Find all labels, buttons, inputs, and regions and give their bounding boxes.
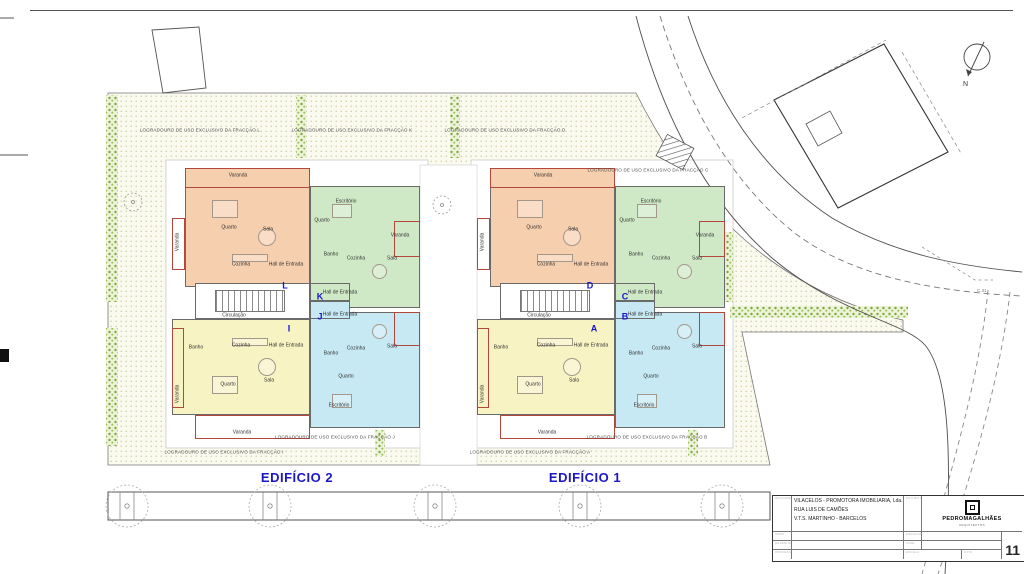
micro-label-client: REQUERENTE bbox=[775, 497, 789, 500]
edificio-label: EDIFÍCIO 2 bbox=[261, 470, 333, 485]
logradouro-label: LOGRADOURO DE USO EXCLUSIVO DA FRACÇÃO I bbox=[164, 450, 283, 455]
micro-label-process: PROCESSO bbox=[775, 551, 789, 554]
logradouro-label: LOGRADOURO DE USO EXCLUSIVO DA FRACÇÃO A bbox=[470, 450, 591, 455]
micro-label-work: OBRA bbox=[775, 533, 789, 536]
logradouro-label: LOGRADOURO DE USO EXCLUSIVO DA FRACÇÃO J bbox=[275, 435, 395, 440]
logradouro-label: LOGRADOURO DE USO EXCLUSIVO DA FRACÇÃO L bbox=[140, 128, 260, 133]
micro-label-drawing: DESENHO bbox=[775, 542, 789, 545]
architect-name: PEDROMAGALHÃES bbox=[942, 516, 1001, 522]
logradouro-label: LOGRADOURO DE USO EXCLUSIVO DA FRACÇÃO D bbox=[444, 128, 565, 133]
micro-label-scale: ESCALA bbox=[906, 551, 919, 554]
edificio-label: EDIFÍCIO 1 bbox=[549, 470, 621, 485]
title-block: REQUERENTE VILACELOS - PROMOTORA IMOBILI… bbox=[772, 495, 1024, 562]
logradouro-label: LOGRADOURO DE USO EXCLUSIVO DA FRACÇÃO C bbox=[587, 168, 708, 173]
client-address2: V.T.S. MARTINHO - BARCELOS bbox=[794, 515, 901, 524]
micro-label-specialty: ESPECIALIDADE bbox=[906, 533, 919, 536]
client-address1: RUA LUIS DE CAMÕES bbox=[794, 506, 901, 515]
logradouro-label: LOGRADOURO DE USO EXCLUSIVO DA FRACÇÃO B bbox=[587, 435, 708, 440]
architect-logo bbox=[965, 500, 980, 515]
micro-label-phase: FASE bbox=[906, 542, 919, 545]
sheet-number: 11 bbox=[1001, 531, 1022, 559]
drawing-sheet: N C.31 CirculaçãoVarandaQuartoSalaCozinh… bbox=[0, 0, 1024, 574]
logradouro-label: LOGRADOURO DE USO EXCLUSIVO DA FRACÇÃO K bbox=[292, 128, 413, 133]
micro-label-designer: PROJECTISTA bbox=[906, 497, 919, 500]
labels-layer: LOGRADOURO DE USO EXCLUSIVO DA FRACÇÃO L… bbox=[0, 0, 1024, 574]
micro-label-date: DATA bbox=[964, 551, 972, 554]
client-name: VILACELOS - PROMOTORA IMOBILIARIA, Lda. bbox=[794, 497, 901, 506]
architect-subtitle: ARQUITECTOS bbox=[959, 523, 985, 527]
